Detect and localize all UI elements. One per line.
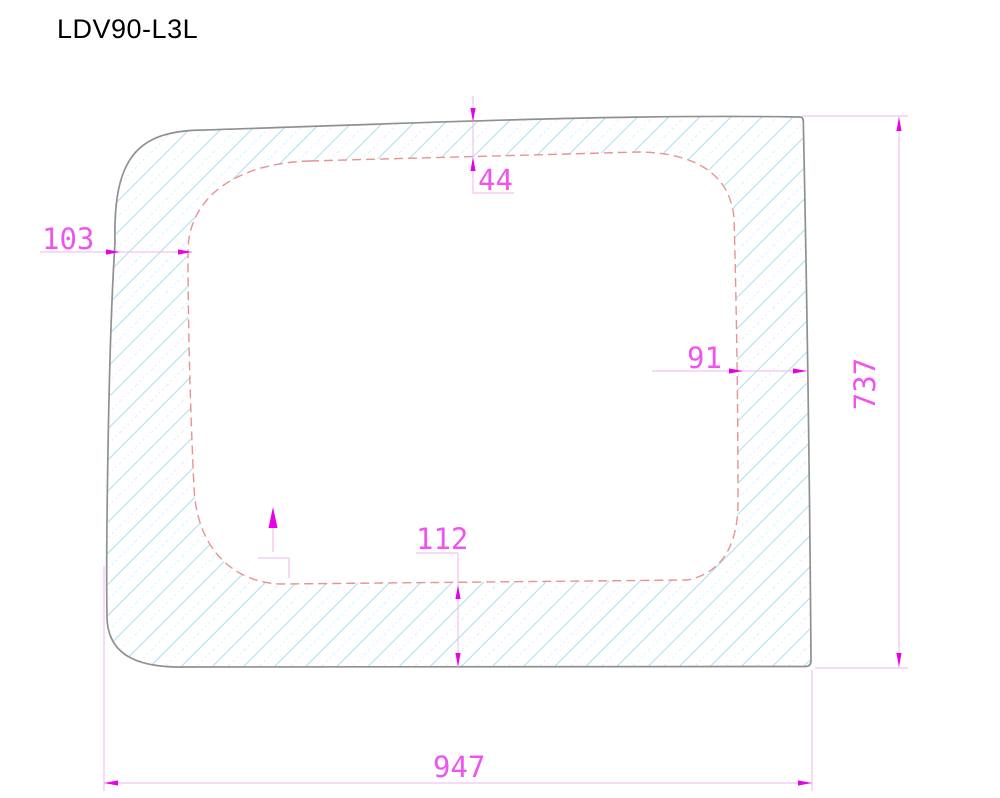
dimension-value: 737 xyxy=(848,358,882,410)
dimension-value: 112 xyxy=(416,522,468,556)
arrow-down-icon xyxy=(896,653,901,667)
arrow-up-icon xyxy=(896,117,901,131)
dimension-overall-height: 737 xyxy=(802,116,908,668)
dimension-value: 44 xyxy=(478,163,513,197)
mark-bracket xyxy=(258,558,289,578)
arrow-left-icon xyxy=(104,780,118,785)
dimension-value: 91 xyxy=(687,341,722,375)
hatch-region xyxy=(107,116,811,667)
arrow-down-icon xyxy=(470,108,475,122)
dimension-value: 103 xyxy=(42,222,94,256)
arrow-right-icon xyxy=(798,780,812,785)
arrow-up-icon xyxy=(470,157,475,171)
arrow-up-icon xyxy=(269,507,278,528)
position-mark xyxy=(258,507,289,578)
dimension-value: 947 xyxy=(433,750,485,784)
cad-drawing-canvas: 44 103 91 112 947 737 xyxy=(0,0,1000,798)
glass-panel xyxy=(107,116,811,667)
